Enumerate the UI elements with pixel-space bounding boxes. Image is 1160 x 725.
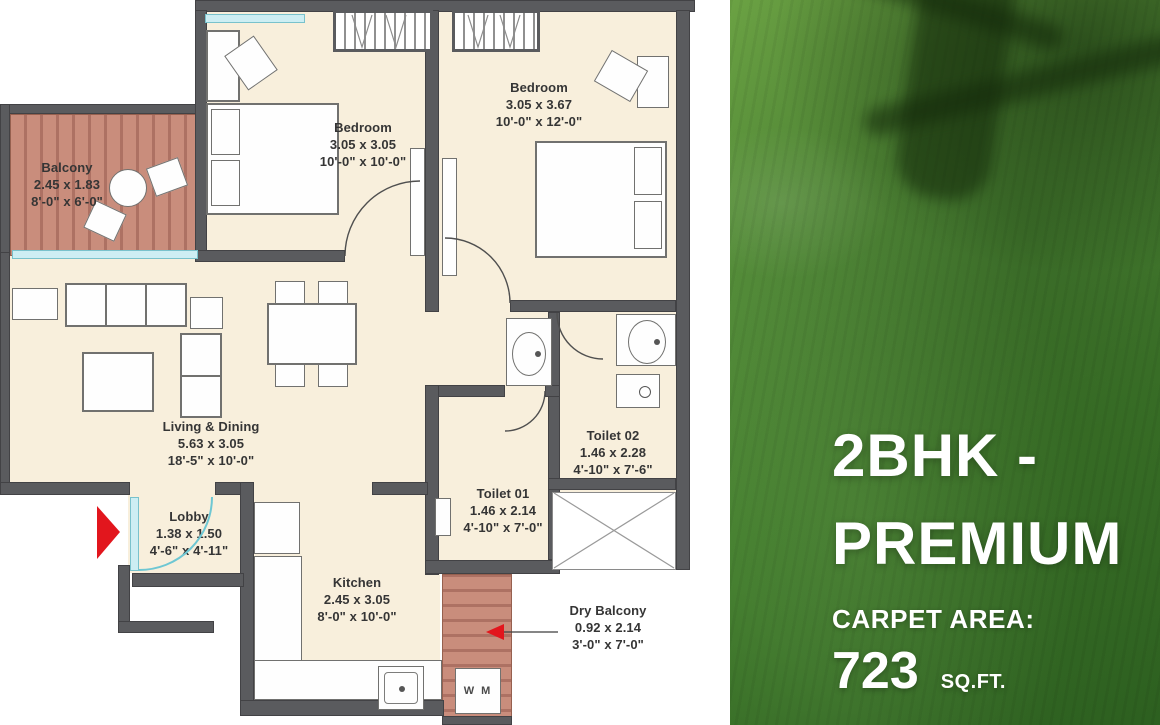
wall bbox=[118, 621, 214, 633]
entrance-arrow-icon bbox=[97, 506, 120, 559]
wardrobe-panel bbox=[442, 158, 457, 276]
room-name: Bedroom bbox=[297, 120, 429, 137]
room-name: Dry Balcony bbox=[552, 603, 664, 620]
room-dim-m: 5.63 x 3.05 bbox=[141, 436, 281, 453]
room-name: Toilet 02 bbox=[547, 428, 679, 445]
room-name: Kitchen bbox=[287, 575, 427, 592]
kitchen-sink bbox=[378, 666, 424, 710]
wash-basin-icon bbox=[628, 320, 666, 364]
wardrobe bbox=[333, 10, 433, 52]
wall bbox=[195, 0, 695, 12]
carpet-area-unit: SQ.FT. bbox=[941, 671, 1006, 694]
room-label-living-dining: Living & Dining 5.63 x 3.05 18'-5" x 10'… bbox=[141, 419, 281, 470]
room-dim-ft: 3'-0" x 7'-0" bbox=[552, 637, 664, 654]
room-dim-ft: 10'-0" x 10'-0" bbox=[297, 154, 429, 171]
wall bbox=[372, 482, 428, 495]
coffee-table bbox=[82, 352, 154, 412]
room-dim-m: 1.38 x 1.50 bbox=[123, 526, 255, 543]
sofa-two-seat bbox=[180, 333, 222, 418]
room-label-bedroom-2: Bedroom 3.05 x 3.67 10'-0" x 12'-0" bbox=[473, 80, 605, 131]
carpet-area-label: CARPET AREA: bbox=[832, 604, 1160, 635]
wash-basin-icon bbox=[512, 332, 546, 376]
room-dim-ft: 4'-6" x 4'-11" bbox=[123, 543, 255, 560]
room-name: Balcony bbox=[5, 160, 129, 177]
room-dim-ft: 8'-0" x 10'-0" bbox=[287, 609, 427, 626]
pillow bbox=[634, 147, 662, 195]
wall bbox=[425, 560, 560, 574]
wall bbox=[545, 385, 560, 397]
room-label-dry-balcony: Dry Balcony 0.92 x 2.14 3'-0" x 7'-0" bbox=[552, 603, 664, 654]
room-dim-m: 1.46 x 2.28 bbox=[547, 445, 679, 462]
room-name: Bedroom bbox=[473, 80, 605, 97]
pillow bbox=[211, 109, 240, 155]
room-dim-m: 0.92 x 2.14 bbox=[552, 620, 664, 637]
side-table bbox=[190, 297, 223, 329]
wall bbox=[0, 482, 130, 495]
wall bbox=[510, 300, 676, 312]
room-dim-ft: 4'-10" x 7'-6" bbox=[547, 462, 679, 479]
washing-machine-label: W M bbox=[464, 685, 493, 697]
plan-title-line-1: 2BHK - bbox=[832, 412, 1160, 500]
room-dim-m: 2.45 x 3.05 bbox=[287, 592, 427, 609]
toilet-wc-icon bbox=[616, 374, 660, 408]
side-table bbox=[637, 56, 669, 108]
duct-box bbox=[552, 492, 676, 570]
room-name: Living & Dining bbox=[141, 419, 281, 436]
wall bbox=[676, 10, 690, 570]
room-dim-ft: 8'-0" x 6'-0" bbox=[5, 194, 129, 211]
room-dim-ft: 10'-0" x 12'-0" bbox=[473, 114, 605, 131]
room-dim-ft: 4'-10" x 7'-0" bbox=[437, 520, 569, 537]
carpet-area-value: 723 bbox=[832, 641, 919, 701]
pillow bbox=[211, 160, 240, 206]
wall bbox=[132, 573, 244, 587]
wall bbox=[0, 252, 10, 495]
washing-machine: W M bbox=[455, 668, 501, 714]
wall bbox=[425, 385, 439, 575]
room-dim-m: 2.45 x 1.83 bbox=[5, 177, 129, 194]
room-label-balcony: Balcony 2.45 x 1.83 8'-0" x 6'-0" bbox=[5, 160, 129, 211]
info-panel: 2BHK - PREMIUM CARPET AREA: 723 SQ.FT. bbox=[730, 0, 1160, 725]
room-label-lobby: Lobby 1.38 x 1.50 4'-6" x 4'-11" bbox=[123, 509, 255, 560]
floor-plan: W M Balcony 2.45 x 1.83 8'-0" x 6'-0" Be… bbox=[0, 0, 730, 725]
room-label-kitchen: Kitchen 2.45 x 3.05 8'-0" x 10'-0" bbox=[287, 575, 427, 626]
refrigerator bbox=[254, 502, 300, 554]
carpet-area-row: 723 SQ.FT. bbox=[832, 641, 1160, 701]
room-dim-m: 3.05 x 3.05 bbox=[297, 137, 429, 154]
flyer: W M Balcony 2.45 x 1.83 8'-0" x 6'-0" Be… bbox=[0, 0, 1160, 725]
dining-table bbox=[267, 303, 357, 365]
balcony-slider-window bbox=[12, 250, 198, 259]
wall bbox=[0, 104, 205, 114]
wall bbox=[195, 250, 345, 262]
room-dim-m: 3.05 x 3.67 bbox=[473, 97, 605, 114]
pillow bbox=[634, 201, 662, 249]
window bbox=[205, 14, 305, 23]
sofa-three-seat bbox=[65, 283, 187, 327]
room-label-bedroom-1: Bedroom 3.05 x 3.05 10'-0" x 10'-0" bbox=[297, 120, 429, 171]
tv-unit bbox=[12, 288, 58, 320]
wardrobe bbox=[452, 10, 540, 52]
panel-text-block: 2BHK - PREMIUM CARPET AREA: 723 SQ.FT. bbox=[832, 412, 1160, 701]
plan-title-line-2: PREMIUM bbox=[832, 500, 1160, 588]
room-dim-m: 1.46 x 2.14 bbox=[437, 503, 569, 520]
room-label-toilet-02: Toilet 02 1.46 x 2.28 4'-10" x 7'-6" bbox=[547, 428, 679, 479]
room-dim-ft: 18'-5" x 10'-0" bbox=[141, 453, 281, 470]
wall bbox=[442, 716, 512, 725]
room-name: Lobby bbox=[123, 509, 255, 526]
room-name: Toilet 01 bbox=[437, 486, 569, 503]
room-label-toilet-01: Toilet 01 1.46 x 2.14 4'-10" x 7'-0" bbox=[437, 486, 569, 537]
